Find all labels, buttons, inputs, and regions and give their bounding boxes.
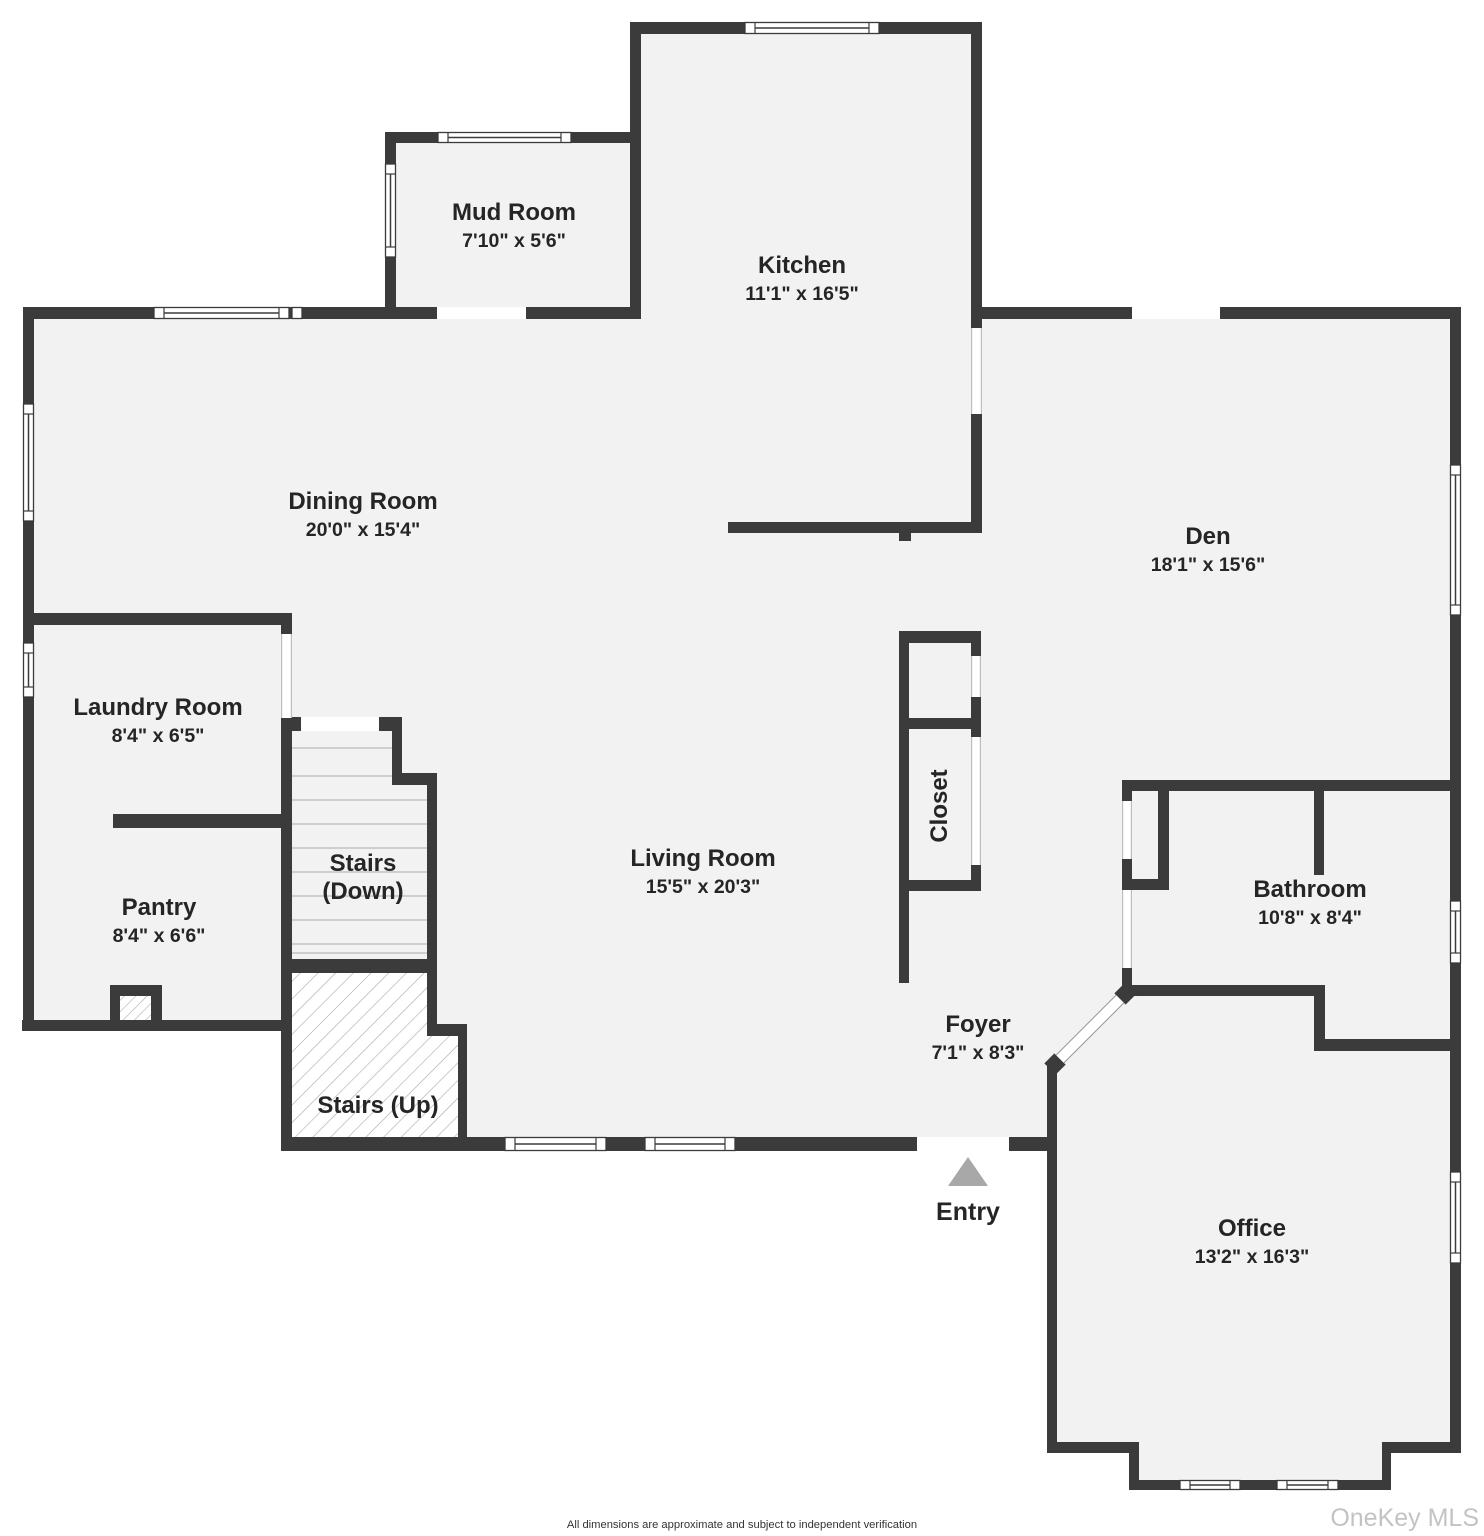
svg-text:8'4" x 6'5": 8'4" x 6'5"	[112, 725, 205, 747]
svg-text:All dimensions are approximate: All dimensions are approximate and subje…	[567, 1519, 917, 1531]
svg-text:(Down): (Down)	[322, 878, 403, 905]
svg-text:Mud Room: Mud Room	[452, 199, 576, 226]
svg-text:15'5" x 20'3": 15'5" x 20'3"	[646, 876, 761, 898]
svg-text:11'1" x 16'5": 11'1" x 16'5"	[745, 283, 858, 305]
svg-text:Entry: Entry	[936, 1198, 1000, 1226]
svg-text:8'4" x 6'6": 8'4" x 6'6"	[113, 925, 206, 947]
svg-text:Bathroom: Bathroom	[1253, 876, 1366, 903]
svg-text:13'2" x 16'3": 13'2" x 16'3"	[1195, 1246, 1310, 1268]
svg-text:10'8" x 8'4": 10'8" x 8'4"	[1258, 907, 1362, 929]
svg-text:Closet: Closet	[926, 769, 953, 842]
svg-text:Foyer: Foyer	[945, 1011, 1010, 1038]
svg-text:OneKey MLS: OneKey MLS	[1330, 1504, 1479, 1532]
svg-text:Laundry Room: Laundry Room	[73, 694, 242, 721]
svg-text:Stairs: Stairs	[330, 850, 397, 877]
svg-text:7'10" x 5'6": 7'10" x 5'6"	[462, 230, 566, 252]
svg-text:Kitchen: Kitchen	[758, 252, 846, 279]
svg-text:7'1" x 8'3": 7'1" x 8'3"	[932, 1042, 1025, 1064]
svg-text:Office: Office	[1218, 1215, 1286, 1242]
svg-text:Den: Den	[1185, 523, 1230, 550]
svg-text:Dining Room: Dining Room	[288, 488, 437, 515]
svg-text:Pantry: Pantry	[122, 894, 197, 921]
svg-text:Stairs (Up): Stairs (Up)	[317, 1092, 438, 1119]
svg-text:20'0" x 15'4": 20'0" x 15'4"	[306, 519, 421, 541]
svg-text:Living Room: Living Room	[630, 845, 775, 872]
svg-text:18'1" x 15'6": 18'1" x 15'6"	[1151, 554, 1266, 576]
